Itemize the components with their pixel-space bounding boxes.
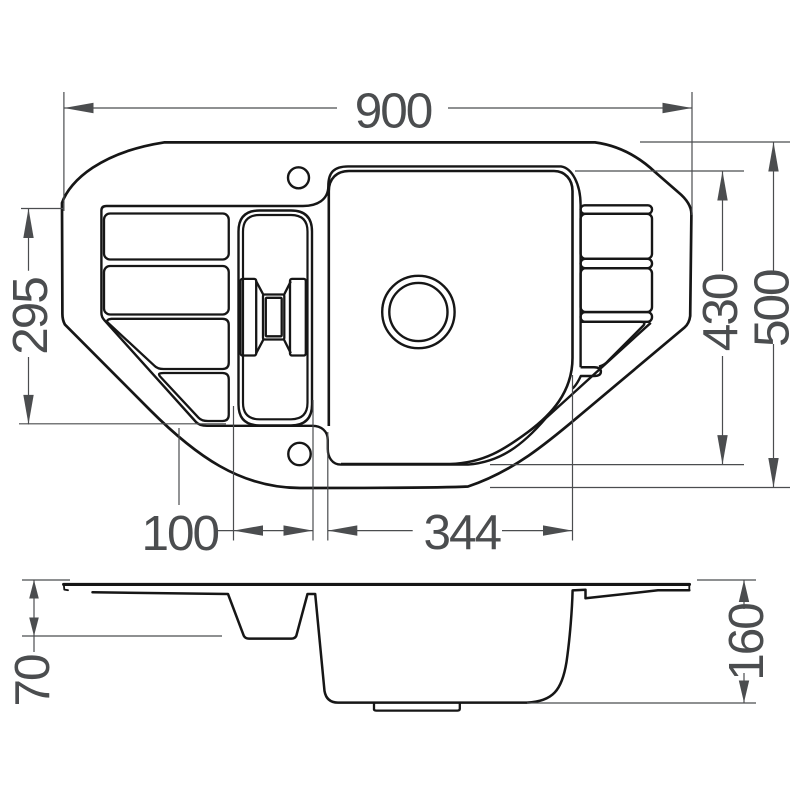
svg-text:70: 70 [5,655,60,707]
svg-text:160: 160 [719,604,774,681]
svg-text:295: 295 [3,278,58,355]
svg-text:100: 100 [142,506,219,561]
svg-text:500: 500 [745,270,800,347]
svg-text:430: 430 [693,274,748,351]
svg-text:900: 900 [355,83,432,138]
svg-text:344: 344 [424,505,502,560]
